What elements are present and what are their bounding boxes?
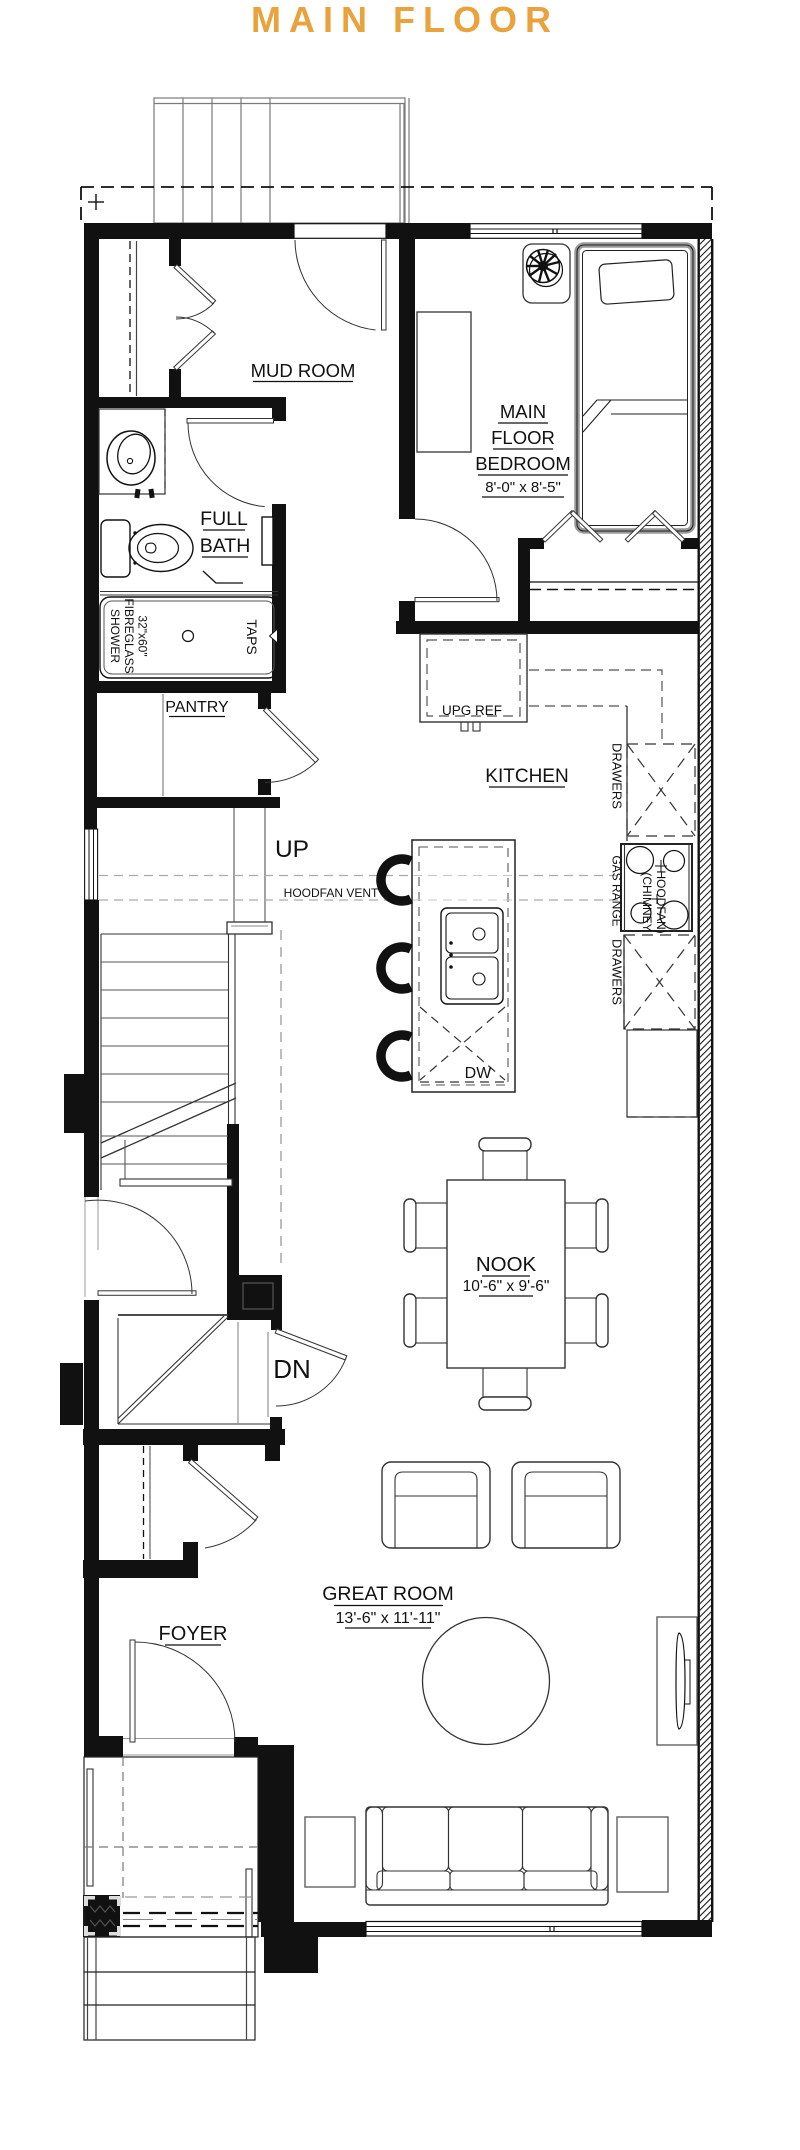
svg-text:GREAT ROOM: GREAT ROOM <box>322 1583 453 1605</box>
svg-text:10'-6" x 9'-6": 10'-6" x 9'-6" <box>463 1278 550 1295</box>
svg-text:GAS RANGE: GAS RANGE <box>610 855 624 926</box>
svg-text:DRAWERS: DRAWERS <box>610 939 625 1005</box>
svg-text:FIBREGLASS: FIBREGLASS <box>122 598 136 673</box>
svg-text:SHOWER: SHOWER <box>108 609 122 663</box>
svg-text:NOOK: NOOK <box>476 1253 537 1276</box>
svg-text:MUD ROOM: MUD ROOM <box>251 360 356 381</box>
svg-text:DW: DW <box>465 1065 493 1082</box>
svg-text:HOODFAN): HOODFAN) <box>654 870 668 933</box>
svg-text:FULL: FULL <box>200 508 248 530</box>
svg-text:UPG REF: UPG REF <box>442 703 502 718</box>
svg-text:BEDROOM: BEDROOM <box>475 453 571 474</box>
svg-text:32"x60": 32"x60" <box>136 615 150 656</box>
svg-text:PANTRY: PANTRY <box>165 699 229 716</box>
svg-text:FOYER: FOYER <box>159 1623 228 1645</box>
svg-text:13'-6" x 11'-11": 13'-6" x 11'-11" <box>336 1610 441 1627</box>
svg-text:MAIN FLOOR: MAIN FLOOR <box>251 0 559 40</box>
svg-text:(CHIMNEY: (CHIMNEY <box>640 872 654 931</box>
svg-text:FLOOR: FLOOR <box>491 427 555 448</box>
svg-text:HOODFAN VENT: HOODFAN VENT <box>284 886 379 900</box>
svg-text:DN: DN <box>273 1354 311 1384</box>
svg-text:8'-0" x 8'-5": 8'-0" x 8'-5" <box>485 479 561 496</box>
svg-text:UP: UP <box>275 836 309 863</box>
svg-text:DRAWERS: DRAWERS <box>610 743 625 809</box>
svg-text:BATH: BATH <box>200 535 251 557</box>
svg-text:TAPS: TAPS <box>244 619 260 655</box>
svg-text:KITCHEN: KITCHEN <box>485 766 568 787</box>
svg-text:MAIN: MAIN <box>500 401 546 422</box>
